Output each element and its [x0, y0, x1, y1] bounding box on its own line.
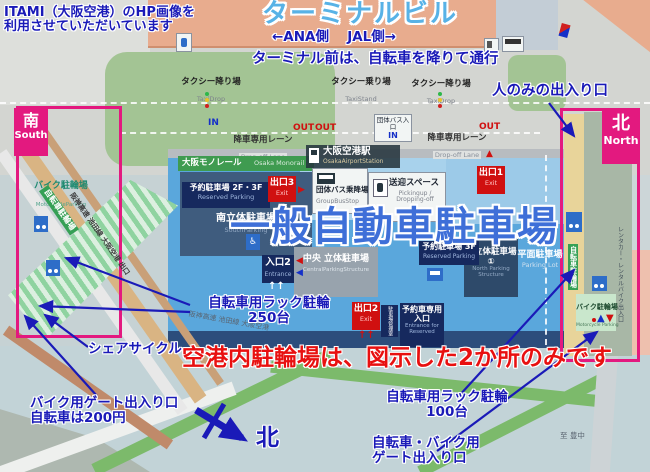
notice-title: 空港内駐輪場は、図示した2か所のみです — [182, 346, 612, 371]
bike-gate-right-note: 自転車・バイク用 ゲート出入り口 — [372, 436, 480, 465]
terminal-rule: ターミナル前は、自転車を降りて通行 — [252, 52, 499, 68]
bike-gate-left-note: バイク用ゲート出入り口 自転車は200円 — [30, 396, 178, 425]
compass-north-label: 北 — [256, 426, 279, 451]
share-cycle-note: シェアサイクル — [88, 342, 182, 357]
main-parking-title: 一般自動車駐車場 — [230, 206, 558, 249]
rack250-note: 自転車用ラック駐輪 250台 — [188, 296, 350, 325]
terminal-sides: ←ANA側 JAL側→ — [272, 30, 396, 45]
credit-note: ITAMI（大阪空港）のHP画像を 利用させていただいています — [4, 6, 195, 34]
airport-map: 南 South 北 North タクシー降り場 TaxiDrop タクシー乗り場… — [0, 0, 650, 472]
rack100-note: 自転車用ラック駐輪 100台 — [376, 390, 518, 419]
people-only-note: 人のみの出入り口 — [492, 84, 608, 100]
terminal-title: ターミナルビル — [262, 0, 458, 28]
compass-arrow — [196, 404, 242, 438]
